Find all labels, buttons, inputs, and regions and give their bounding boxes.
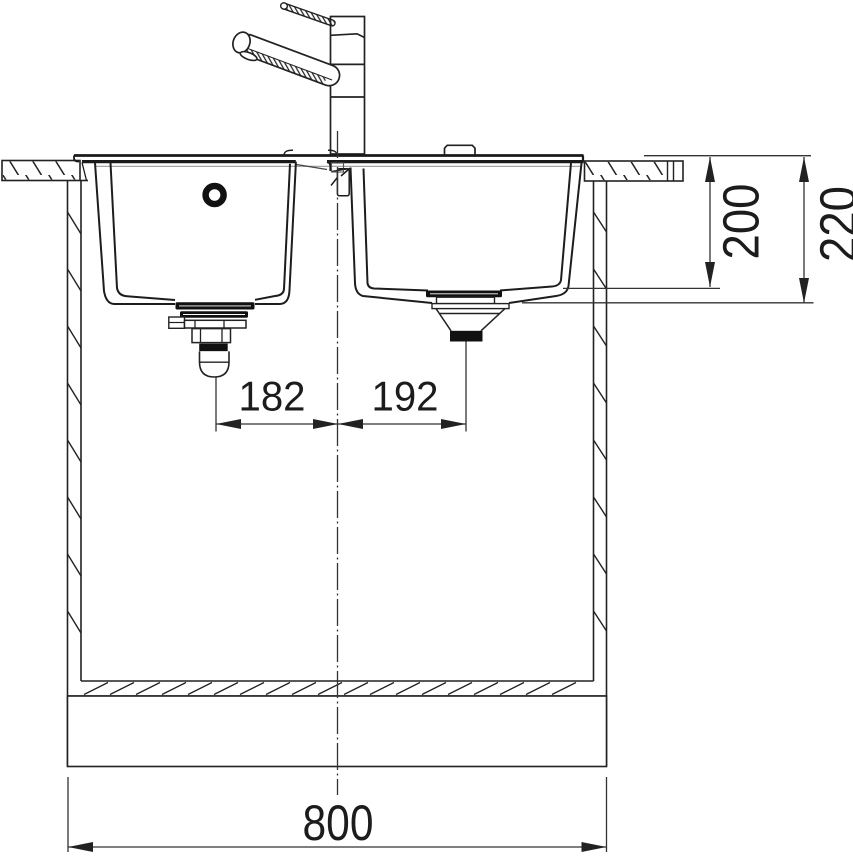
svg-text:220: 220: [810, 186, 853, 262]
svg-text:182: 182: [239, 373, 306, 420]
svg-text:200: 200: [713, 184, 770, 260]
svg-text:800: 800: [303, 795, 374, 851]
svg-text:192: 192: [372, 373, 439, 420]
